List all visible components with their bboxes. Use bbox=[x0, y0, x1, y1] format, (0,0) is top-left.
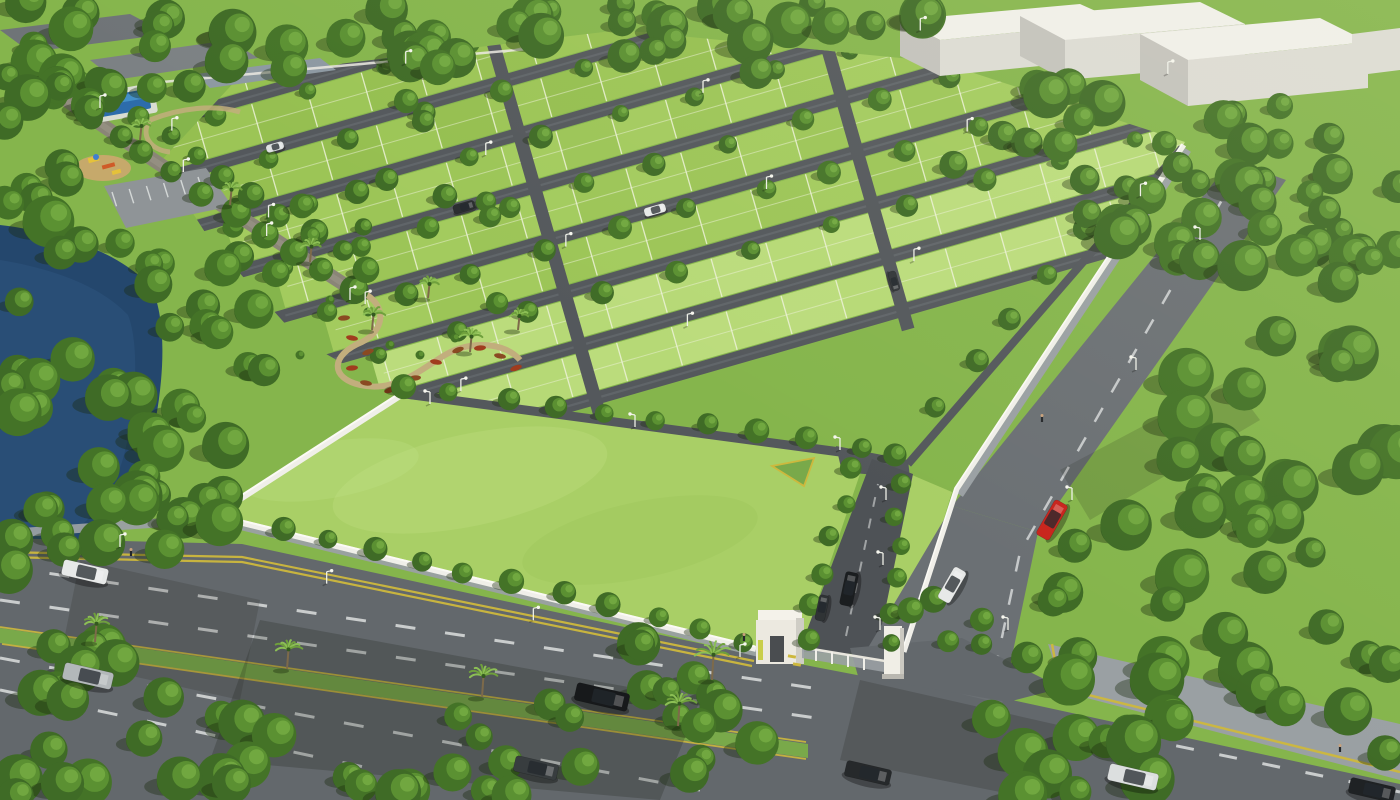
aerial-render-canvas bbox=[0, 0, 1400, 800]
plotted-development-aerial-view bbox=[0, 0, 1400, 800]
sunlight-overlay bbox=[0, 0, 1400, 800]
